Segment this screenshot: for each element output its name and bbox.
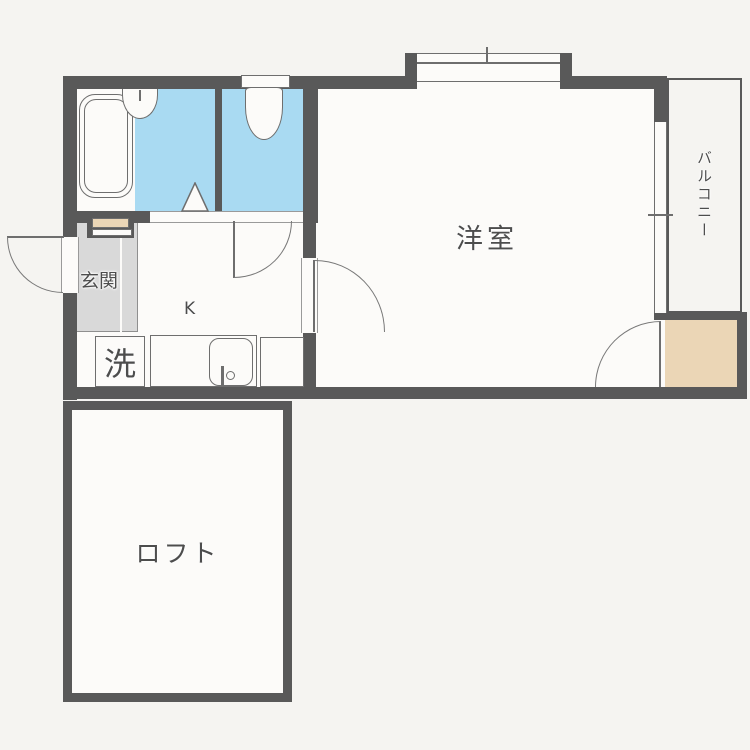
loft-label: ロフト	[135, 534, 219, 570]
wall	[303, 333, 316, 387]
shoe-cabinet	[92, 218, 129, 228]
western-room-label: 洋室	[427, 217, 547, 256]
window-center-tick	[648, 214, 673, 216]
entrance-label: 玄関	[77, 266, 121, 293]
wall	[654, 312, 747, 320]
washbasin-faucet-icon	[139, 90, 141, 101]
balcony-label: バルコニー	[694, 150, 715, 240]
closet	[665, 319, 737, 388]
wall	[303, 76, 318, 223]
laundry-label: 洗	[96, 337, 144, 386]
balcony-window	[654, 122, 667, 313]
bathroom-folding-door-icon	[181, 182, 209, 212]
top-window-mullion	[406, 62, 571, 64]
window-center-tick	[486, 47, 488, 62]
entrance-step	[92, 229, 132, 236]
stove-space	[260, 337, 304, 387]
top-window	[405, 53, 572, 82]
wall	[560, 76, 667, 89]
window-jamb	[560, 53, 572, 89]
wall	[303, 223, 316, 258]
wall	[737, 312, 747, 390]
wall	[215, 89, 222, 211]
floor-plan: 洗 ロフト 洋室 玄関 K バルコニー	[0, 0, 750, 750]
kitchen-faucet-icon	[221, 366, 224, 385]
wall	[63, 387, 747, 399]
kitchen-label: K	[184, 299, 195, 319]
front-door-swing-arc	[7, 237, 63, 293]
wall	[654, 76, 667, 122]
window-jamb	[405, 53, 417, 89]
wall	[63, 76, 417, 89]
loft-room: ロフト	[63, 401, 292, 702]
kitchen-faucet-knob-icon	[226, 371, 235, 380]
laundry-space: 洗	[95, 336, 145, 387]
bathtub-inner	[84, 99, 128, 193]
